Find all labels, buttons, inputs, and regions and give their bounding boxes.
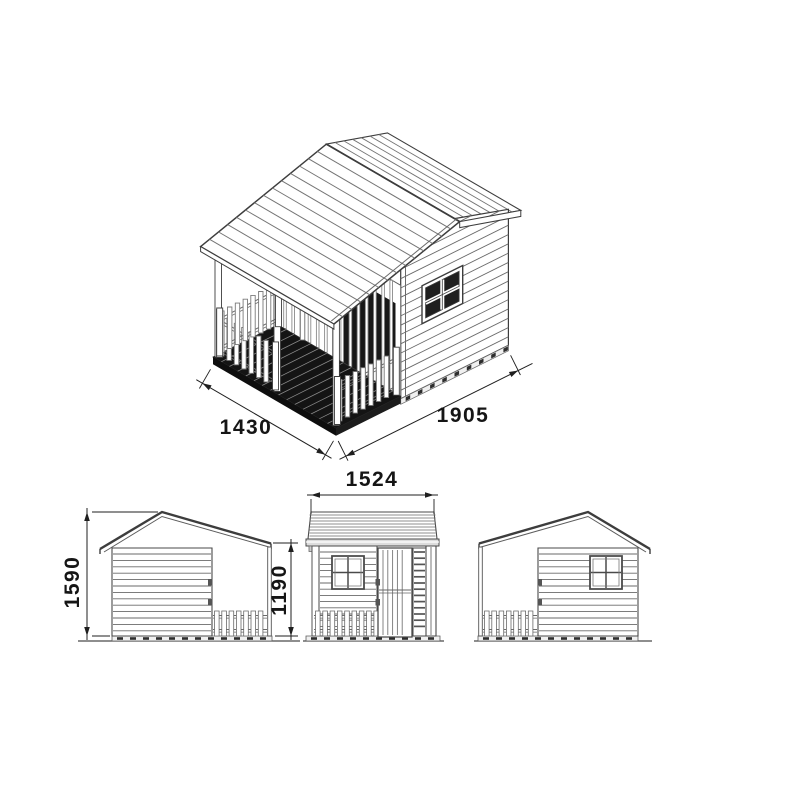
fence-left-picket	[251, 295, 255, 337]
fence-front-post	[273, 342, 279, 390]
fence-right-picket	[361, 368, 365, 410]
side-view-left	[78, 512, 300, 641]
fence-picket	[345, 611, 350, 636]
dim-arrow	[288, 627, 294, 636]
roof-outline	[100, 512, 271, 549]
hinge	[208, 579, 213, 586]
fence-right-post	[335, 377, 341, 425]
dim-arrow	[509, 371, 518, 378]
fence-picket	[251, 611, 256, 636]
fence-picket	[229, 611, 234, 636]
fence-right-picket	[345, 376, 349, 418]
fence-picket	[514, 611, 519, 636]
fence-left-picket	[266, 288, 270, 330]
fence-left-picket	[243, 299, 247, 341]
fence-picket	[337, 611, 342, 636]
fence-picket	[323, 611, 328, 636]
fence-picket	[499, 611, 504, 636]
fence-picket	[528, 611, 533, 636]
hinge	[538, 599, 543, 606]
fence-picket	[521, 611, 526, 636]
porch-post	[479, 547, 483, 636]
fence-picket	[330, 611, 335, 636]
fence-picket	[244, 611, 249, 636]
fence-picket	[236, 611, 241, 636]
roof-outline	[479, 512, 650, 549]
hinge	[538, 579, 543, 586]
hinge	[376, 599, 381, 606]
fence-right-picket	[376, 360, 380, 402]
dim-arrow	[202, 383, 211, 390]
technical-drawing-page: 1430 1905 1524 1590 1190	[0, 0, 800, 800]
fence-front-picket	[264, 340, 268, 382]
fence-picket	[258, 611, 263, 636]
fence-picket	[316, 611, 321, 636]
fence-left-post	[217, 308, 223, 356]
dim-label-iso-width: 1430	[220, 416, 273, 439]
fence-picket	[352, 611, 357, 636]
fence-picket	[492, 611, 497, 636]
fence-picket	[367, 611, 372, 636]
dim-arrow	[288, 543, 294, 552]
dim-label-iso-depth: 1905	[437, 404, 490, 427]
hinge	[376, 579, 381, 586]
dim-label-front-width: 1524	[346, 468, 399, 491]
fence-left-picket	[235, 303, 239, 345]
dim-arrow	[84, 627, 90, 636]
fence-picket	[222, 611, 227, 636]
fence-picket	[359, 611, 364, 636]
fence-picket	[485, 611, 490, 636]
fence-picket	[506, 611, 511, 636]
dim-label-ridge-height: 1590	[61, 556, 84, 609]
fence-left-picket	[259, 292, 263, 334]
roof-band	[308, 512, 437, 539]
fence-right-post	[393, 347, 399, 395]
fence-left-picket	[228, 307, 232, 349]
hinge	[208, 599, 213, 606]
dim-label-eave-height: 1190	[268, 564, 291, 616]
fence-right-picket	[384, 356, 388, 398]
front-view	[303, 512, 444, 641]
playhouse-drawing: 1430 1905 1524 1590 1190	[0, 0, 800, 800]
corner-rung-strip	[413, 548, 426, 636]
isometric-view	[201, 133, 521, 436]
dim-arrow	[425, 492, 434, 498]
dim-arrow	[311, 492, 320, 498]
dim-arrow	[346, 450, 355, 457]
fence-front-picket	[249, 332, 253, 374]
fence-front-picket	[257, 336, 261, 378]
fence-picket	[215, 611, 220, 636]
fence-right-picket	[353, 372, 357, 414]
dim-arrow	[316, 448, 325, 455]
side-view-right	[474, 512, 652, 641]
dim-arrow	[84, 512, 90, 521]
fence-right-picket	[369, 364, 373, 406]
